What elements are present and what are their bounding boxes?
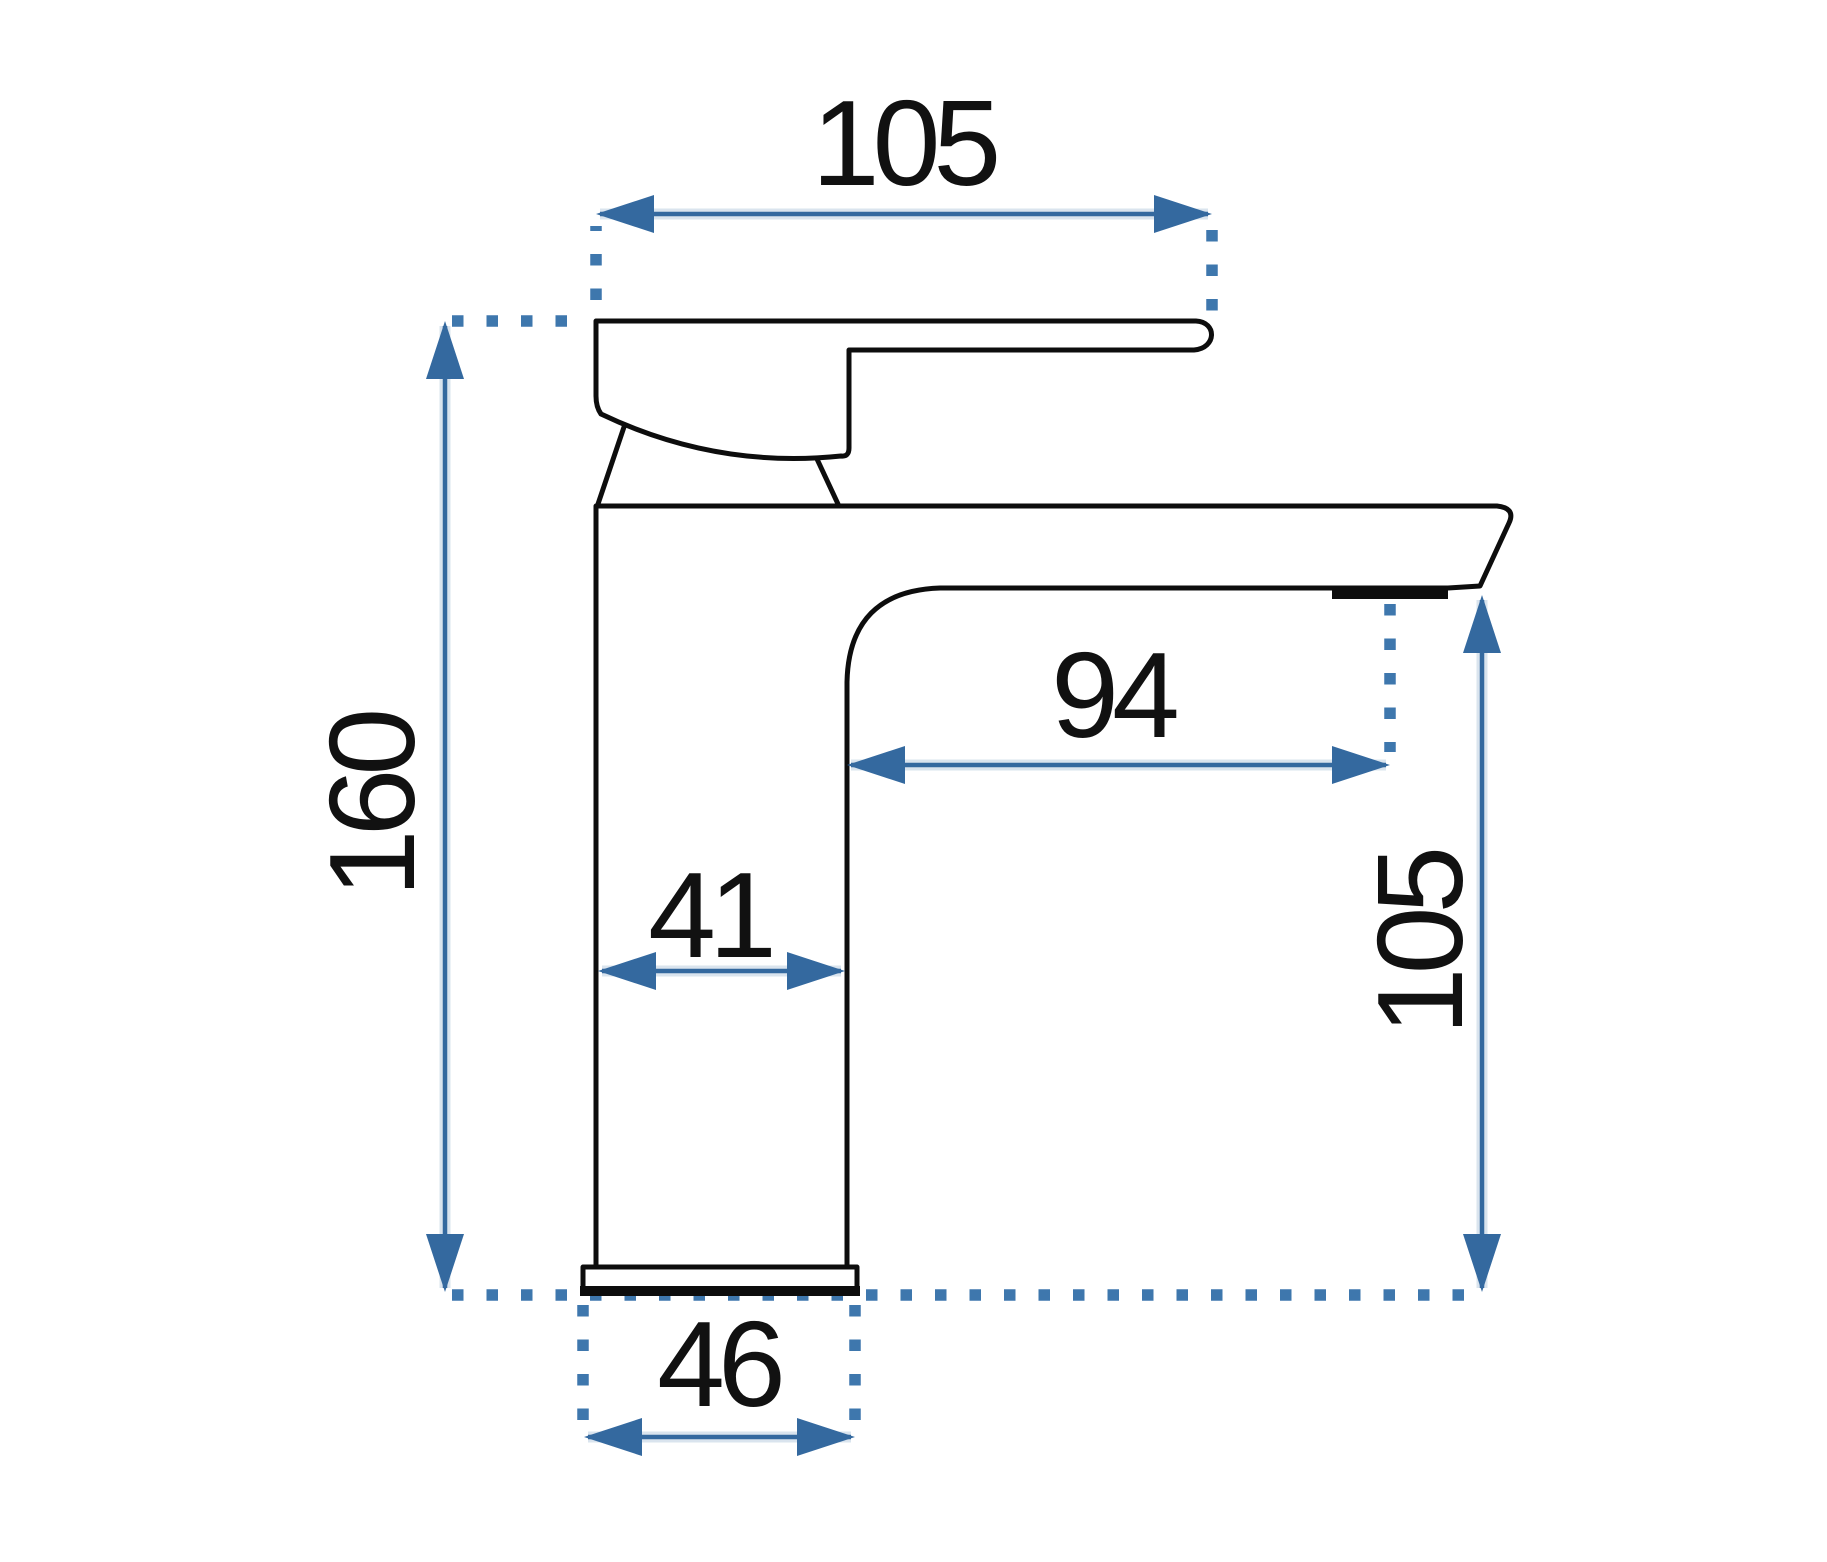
faucet-neck-left-edge bbox=[598, 427, 624, 504]
faucet-neck-right-edge bbox=[817, 459, 838, 504]
faucet-technical-drawing: 105 160 94 41 bbox=[0, 0, 1827, 1562]
dimension-label-base-width: 46 bbox=[657, 1296, 781, 1432]
dimension-spout-reach-arrowhead-right bbox=[1332, 746, 1390, 784]
dimension-total-height-arrowhead-bottom bbox=[426, 1234, 464, 1292]
spout-aerator bbox=[1332, 586, 1448, 599]
dimension-body-width-arrowhead-right bbox=[787, 952, 845, 990]
dimension-label-spout-reach: 94 bbox=[1051, 627, 1177, 763]
faucet-technical-drawing-page: 105 160 94 41 bbox=[0, 0, 1827, 1562]
dimension-label-top-width: 105 bbox=[812, 75, 997, 211]
dimension-spout-height-arrowhead-bottom bbox=[1463, 1234, 1501, 1292]
dimension-top-width-arrowhead-left bbox=[596, 195, 654, 233]
dimension-total-height-arrowhead-top bbox=[426, 321, 464, 379]
dimension-base-width-arrowhead-left bbox=[584, 1418, 642, 1456]
dimension-spout-height-arrowhead-top bbox=[1463, 595, 1501, 653]
dimension-label-spout-height: 105 bbox=[1352, 851, 1488, 1036]
extension-lines bbox=[452, 226, 1478, 1432]
dimension-spout-reach: 94 bbox=[847, 627, 1390, 784]
dimension-base-width: 46 bbox=[584, 1296, 855, 1456]
dimension-base-width-arrowhead-right bbox=[797, 1418, 855, 1456]
dimension-label-body-width: 41 bbox=[648, 847, 771, 983]
dimension-spout-height: 105 bbox=[1352, 595, 1501, 1292]
dimension-top-width: 105 bbox=[596, 75, 1212, 233]
faucet-handle-outline bbox=[596, 321, 1212, 458]
dimension-total-height: 160 bbox=[304, 321, 464, 1292]
dimension-top-width-arrowhead-right bbox=[1154, 195, 1212, 233]
dimension-spout-reach-arrowhead-left bbox=[847, 746, 905, 784]
dimension-label-total-height: 160 bbox=[304, 712, 440, 898]
faucet-outline bbox=[580, 321, 1511, 1291]
dimension-body-width: 41 bbox=[598, 847, 845, 990]
